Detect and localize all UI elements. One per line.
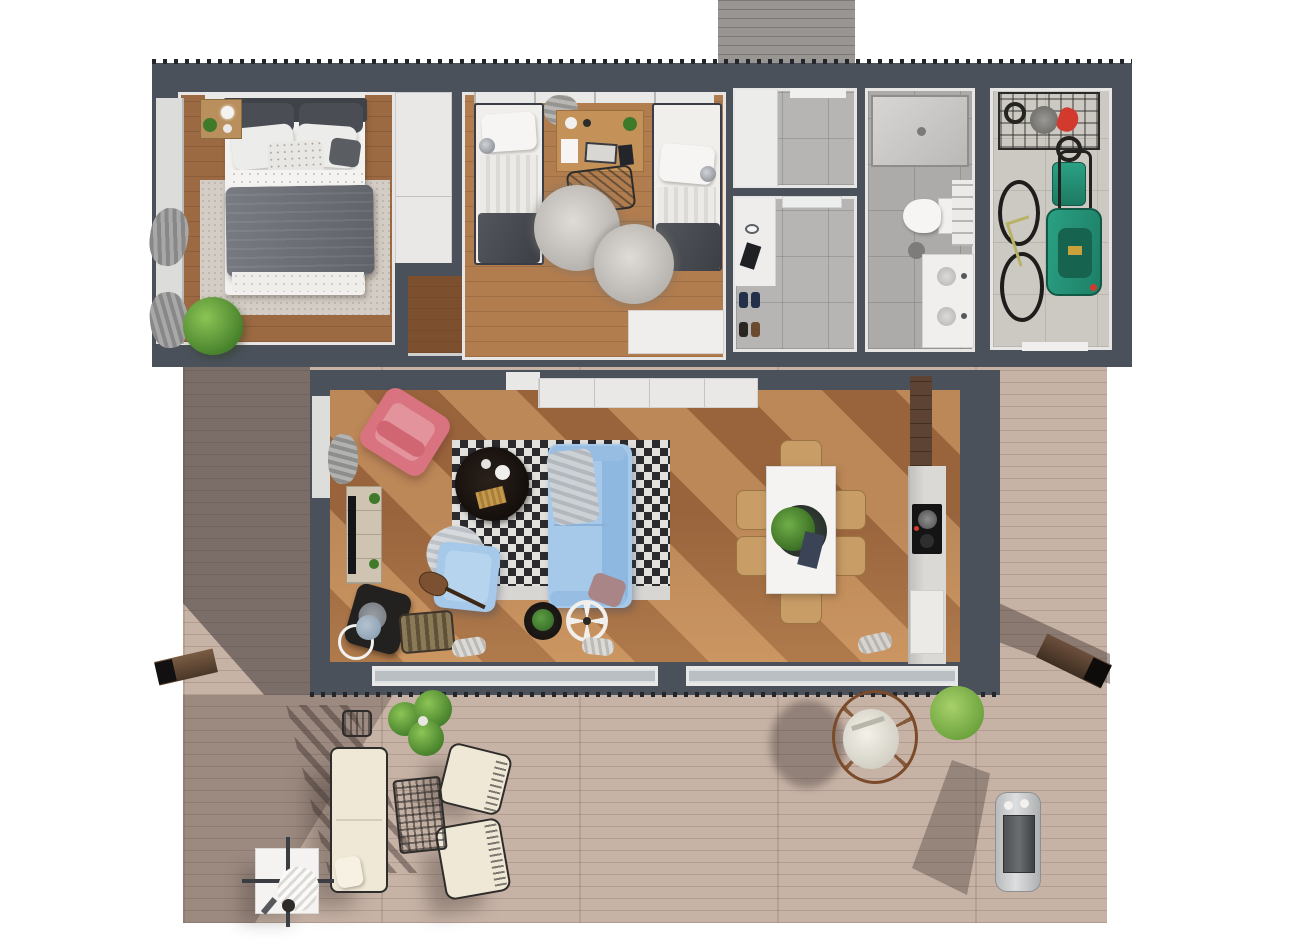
living-sideboard [538, 378, 758, 408]
sink-basin-2 [937, 307, 956, 326]
wall-lamp-left [479, 138, 495, 154]
black-side-table [524, 602, 562, 640]
toilet-bowl [903, 199, 941, 233]
entry-sideboard [735, 198, 776, 286]
duvet-grey [225, 185, 375, 278]
leaf-cluster [408, 720, 444, 756]
deck-plant-large [388, 690, 454, 756]
sofa-cushion-seam [336, 819, 382, 821]
paper-sheet [561, 139, 578, 163]
grill-lid [1003, 815, 1035, 873]
beam-end-cap [154, 659, 176, 684]
table-lamp [221, 106, 234, 119]
kids-round-rug-2 [594, 224, 674, 304]
outdoor-sofa [330, 747, 388, 893]
handbag [740, 242, 762, 269]
blanket-dark [478, 213, 540, 263]
mower-button [1090, 284, 1097, 291]
dining-table [766, 466, 836, 594]
ceiling-vent [782, 196, 842, 208]
sink-basin-1 [937, 267, 956, 286]
mower-handle [1058, 150, 1092, 208]
kitchen-tall-cabinet [910, 376, 932, 466]
cup-white [481, 459, 491, 469]
tv-screen [348, 496, 356, 574]
throw-blanket [546, 447, 601, 526]
plate-white [495, 465, 510, 480]
beach-towel [273, 863, 322, 915]
nightstand-plant [203, 118, 217, 132]
grill-knob-1 [1004, 801, 1013, 810]
living-curtain [328, 434, 358, 484]
console-plant [369, 493, 380, 504]
laptop [584, 142, 617, 164]
shoes-pair-2 [739, 322, 748, 337]
hanging-egg-chair [832, 690, 918, 784]
blue-sofa [548, 444, 632, 608]
burner-pot [918, 510, 937, 529]
vanity-double-sink [922, 254, 974, 348]
dining-chair-bottom [780, 592, 822, 624]
white-tray-fan [566, 600, 608, 642]
mug [583, 119, 591, 127]
hall-door-gap [506, 372, 540, 390]
wall-hatch-top [152, 59, 1132, 64]
striped-sheet [480, 155, 538, 217]
lawn-mower [1046, 208, 1102, 296]
glass-door-run-left [372, 666, 658, 686]
living-window-left [312, 396, 330, 498]
kids-bed-left [474, 103, 544, 265]
kids-window-strip [474, 92, 714, 103]
flower-dot [418, 716, 428, 726]
bottle [261, 897, 277, 915]
desk-plant [623, 117, 637, 131]
shower [871, 95, 969, 167]
storage-closet [735, 90, 778, 186]
bbq-grill [995, 792, 1041, 892]
dining-chair-left-2 [736, 536, 768, 576]
wardrobe-seam [396, 196, 451, 197]
dining-chair-right-2 [834, 536, 866, 576]
kids-dresser [628, 310, 724, 354]
garage-wall-rack [998, 92, 1100, 150]
entry-porch [718, 0, 855, 64]
cup [223, 124, 232, 133]
shower-drain [917, 127, 926, 136]
cooktop [912, 504, 942, 554]
key-bowl [745, 224, 759, 234]
wire-coffee-table [392, 776, 447, 855]
striped-sheet [658, 187, 716, 227]
wire-stool [342, 710, 372, 737]
floor-lamp-shade [356, 615, 381, 640]
towel-shelf [952, 180, 973, 246]
deck-plant-light [930, 686, 984, 740]
master-nightstand [200, 99, 242, 139]
dining-chair-left-1 [736, 490, 768, 530]
grill-knob-2 [1020, 799, 1029, 808]
book-gold [475, 486, 506, 509]
burner [920, 534, 934, 548]
sunglasses [282, 899, 295, 912]
glass-door-run-right [686, 666, 958, 686]
pillow-accent [328, 137, 361, 168]
coffee-table [455, 447, 529, 521]
wire-basket-blanket [398, 610, 455, 655]
plate [565, 117, 577, 129]
front-door [790, 88, 846, 98]
faucet-1 [961, 273, 967, 279]
sheet-trim-foot [232, 272, 364, 292]
bucket [1030, 106, 1058, 134]
master-potted-plant [183, 297, 243, 355]
faucet-2 [961, 313, 967, 319]
shoes-pair-1 [739, 292, 748, 308]
tray-hub [583, 617, 591, 625]
wall-lamp-right [700, 166, 716, 182]
floor-plan [0, 0, 1300, 947]
cooktop-knob [914, 526, 919, 531]
dining-chair-right-1 [834, 490, 866, 530]
red-gloves [1054, 105, 1081, 134]
garage-exterior-door [1022, 342, 1088, 351]
folded-towels-2 [581, 636, 615, 656]
white-side-table [255, 848, 319, 914]
kitchen-appliance [910, 590, 944, 654]
kids-desk [556, 110, 644, 172]
egg-chair-cushion [843, 709, 899, 769]
mower-badge [1068, 246, 1082, 255]
master-wardrobe [395, 92, 452, 266]
console-decor [369, 559, 379, 569]
sofa-end-pillow [334, 855, 365, 889]
side-table-plant [532, 609, 554, 631]
notebook [618, 144, 634, 165]
cable-coil [1004, 102, 1026, 124]
